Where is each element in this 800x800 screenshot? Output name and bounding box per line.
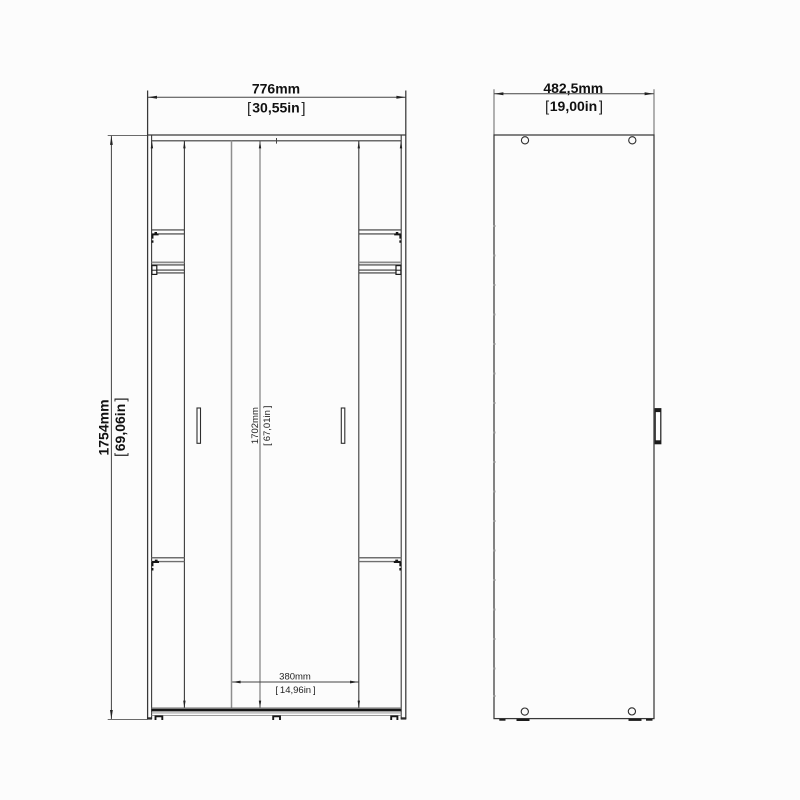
svg-text:776mm: 776mm	[252, 81, 300, 97]
svg-text:380mm: 380mm	[279, 671, 311, 682]
svg-text:30,55in: 30,55in	[252, 100, 299, 116]
svg-text:]: ]	[301, 100, 305, 117]
svg-text:69,06in: 69,06in	[112, 404, 128, 451]
svg-text:1754mm: 1754mm	[95, 399, 111, 455]
svg-text:]: ]	[599, 99, 603, 116]
svg-text:1702mm: 1702mm	[250, 407, 261, 444]
svg-text:19,00in: 19,00in	[550, 98, 597, 114]
svg-text:[ 14,96in ]: [ 14,96in ]	[275, 685, 315, 696]
svg-text:[ 67,01in ]: [ 67,01in ]	[262, 406, 273, 446]
svg-text:]: ]	[112, 398, 129, 402]
